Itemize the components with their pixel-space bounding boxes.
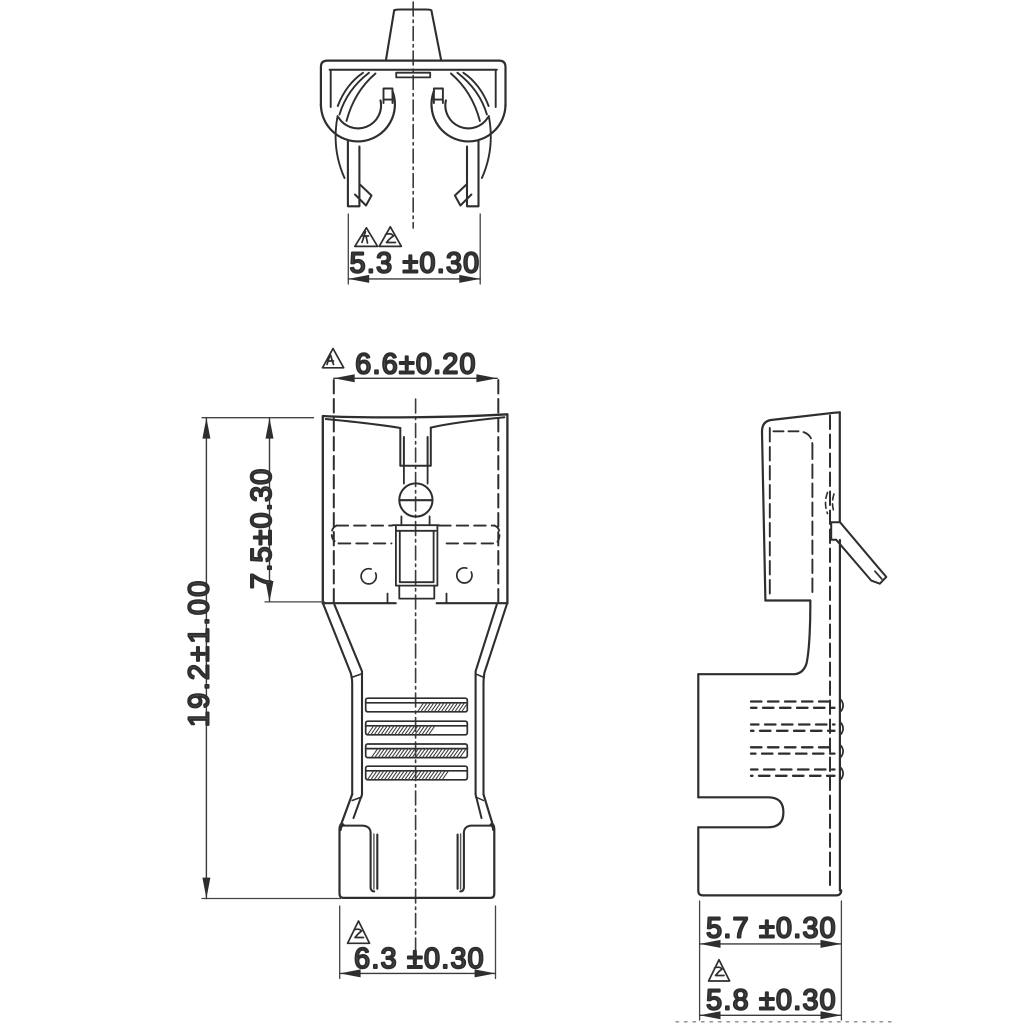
- svg-text:7.5±0.30: 7.5±0.30: [246, 468, 278, 590]
- svg-text:19.2±1.00: 19.2±1.00: [184, 578, 216, 727]
- svg-text:5.7 ±0.30: 5.7 ±0.30: [706, 913, 837, 945]
- svg-text:6.6±0.20: 6.6±0.20: [355, 349, 477, 381]
- svg-text:5.8 ±0.30: 5.8 ±0.30: [706, 985, 837, 1017]
- svg-text:6.3 ±0.30: 6.3 ±0.30: [354, 943, 485, 975]
- svg-text:5.3 ±0.30: 5.3 ±0.30: [350, 248, 481, 280]
